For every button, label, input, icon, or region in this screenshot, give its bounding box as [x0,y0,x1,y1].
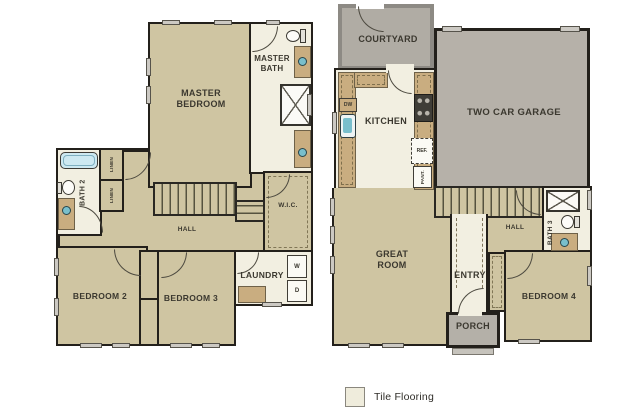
window-icon [330,226,335,244]
pantry-icon: PANT. [413,166,432,188]
window-icon [382,343,404,348]
window-icon [518,339,540,344]
dishwasher-icon: DW [339,98,357,112]
pantry-label: PANT. [420,170,425,184]
bedroom4-label: BEDROOM 4 [508,291,590,301]
window-icon [330,198,335,216]
closet-shelving [492,256,502,308]
shower-icon [546,190,580,212]
porch-label: PORCH [446,321,500,332]
garage-wall-notch [442,26,462,32]
porch-steps-icon [452,348,494,355]
kitchen-sink-icon [340,114,356,138]
sink-basin-icon [343,118,352,133]
dishwasher-label: DW [344,102,352,108]
toilet-bowl-icon [561,215,574,229]
stove-icon [414,94,433,122]
tile-flooring-label: Tile Flooring [374,391,434,403]
window-icon [332,112,337,134]
kitchen-label: KITCHEN [356,116,416,127]
tile-flooring-swatch [345,387,365,407]
window-icon [587,266,592,286]
cabinet-line [357,75,385,85]
bath3-label: BATH 3 [545,214,556,252]
entry-label: ENTRY [448,270,492,281]
shower-door-icon [587,190,592,210]
great-room-label: GREAT ROOM [352,249,432,271]
garage-wall-notch [560,26,580,32]
closet-entry [488,252,506,312]
floor-plan-canvas: W D MASTER BEDROOM MASTER BATH BATH 2 LI… [0,0,640,415]
lower-floor-plan: DW REF. PANT. [0,0,640,415]
window-icon [348,343,370,348]
toilet-icon [574,216,580,228]
legend: Tile Flooring [345,387,434,407]
window-icon [330,256,335,274]
hall-label: HALL [498,224,532,232]
kitchen-counter [354,72,388,88]
courtyard-label: COURTYARD [348,34,428,45]
garage-label: TWO CAR GARAGE [446,107,582,118]
refrigerator-icon: REF. [411,138,433,164]
sink-icon [560,238,569,247]
refrigerator-label: REF. [417,148,428,154]
